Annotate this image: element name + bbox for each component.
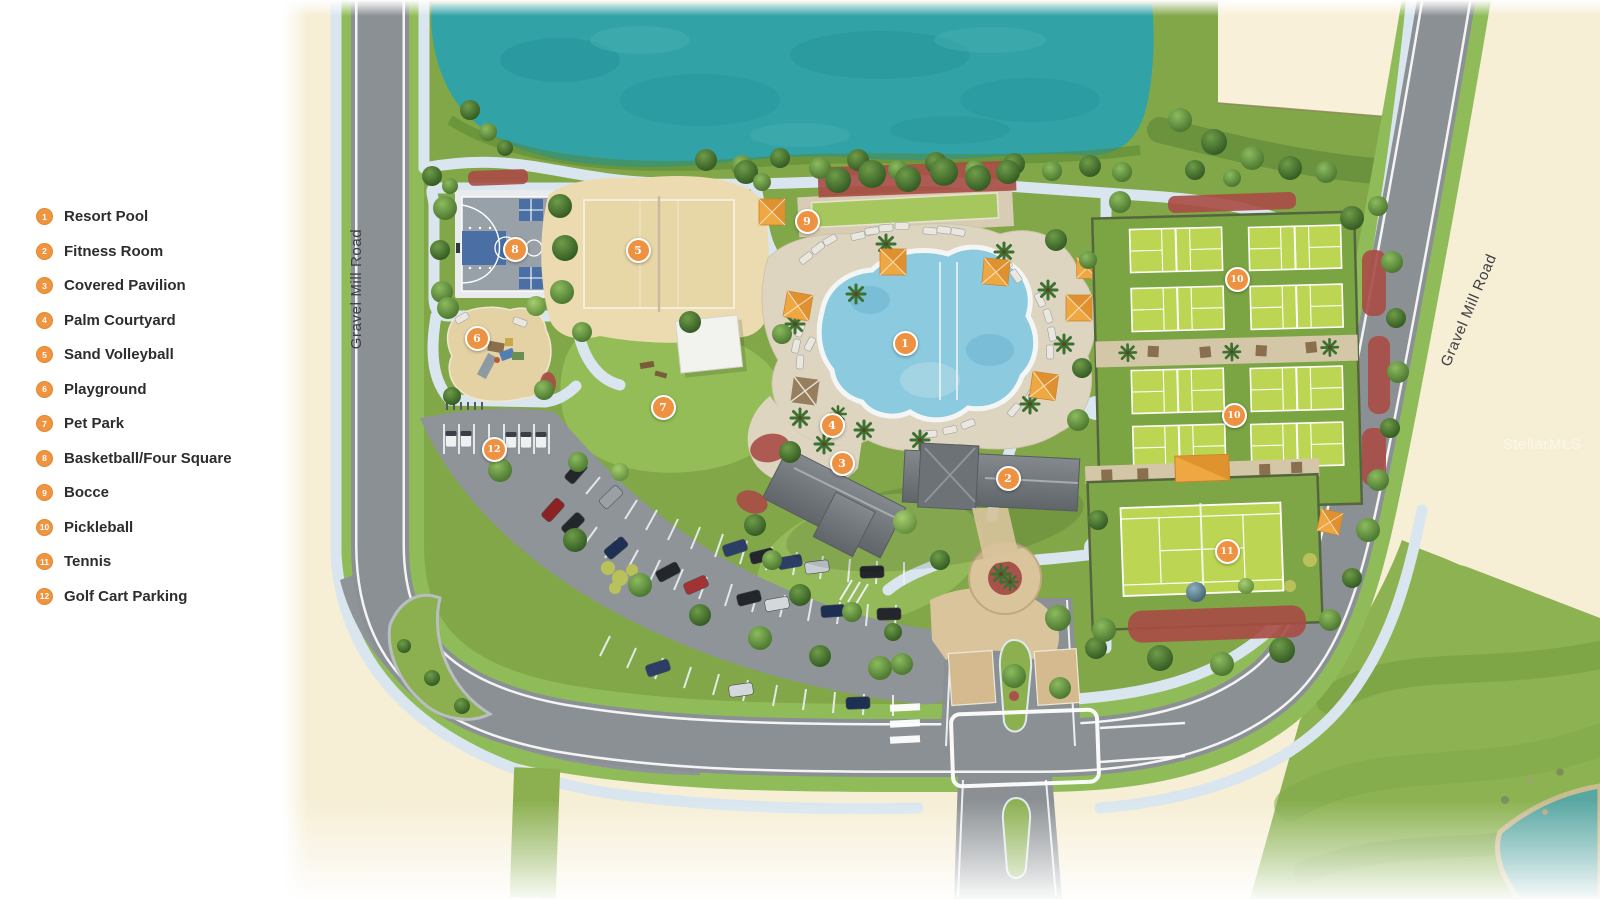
legend-item: 6Playground [36,379,232,400]
legend-number-badge: 8 [36,450,53,467]
legend-item-label: Resort Pool [64,208,148,225]
legend-item-label: Playground [64,381,147,398]
legend-item-label: Sand Volleyball [64,346,174,363]
legend-item: 2Fitness Room [36,241,232,262]
legend-number-badge: 12 [36,588,53,605]
legend-item-label: Bocce [64,484,109,501]
legend-number-badge: 2 [36,243,53,260]
legend-number-badge: 5 [36,346,53,363]
legend-item-label: Pet Park [64,415,124,432]
watermark: StellarMLS [1503,436,1581,453]
legend-item-label: Golf Cart Parking [64,588,187,605]
legend-item: 8Basketball/Four Square [36,448,232,469]
legend-number-badge: 7 [36,415,53,432]
legend-item-label: Covered Pavilion [64,277,186,294]
legend-item-label: Tennis [64,553,111,570]
legend-item: 1Resort Pool [36,206,232,227]
legend-number-badge: 4 [36,312,53,329]
legend-item: 7Pet Park [36,413,232,434]
legend-number-badge: 6 [36,381,53,398]
lake [431,4,1153,167]
legend-item-label: Palm Courtyard [64,312,176,329]
legend-item: 5Sand Volleyball [36,344,232,365]
legend: 1Resort Pool2Fitness Room3Covered Pavili… [36,206,232,607]
legend-item-label: Basketball/Four Square [64,450,232,467]
legend-number-badge: 3 [36,277,53,294]
legend-number-badge: 1 [36,208,53,225]
legend-item-label: Fitness Room [64,243,163,260]
road-label-left: Gravel Mill Road [348,229,365,349]
site-map-illustration: Gravel Mill Road Gravel Mill Road Stella… [0,0,1600,899]
site-plan-image: Gravel Mill Road Gravel Mill Road Stella… [0,0,1600,899]
legend-item: 12Golf Cart Parking [36,586,232,607]
legend-number-badge: 11 [36,553,53,570]
legend-number-badge: 10 [36,519,53,536]
legend-item-label: Pickleball [64,519,133,536]
legend-item: 9Bocce [36,482,232,503]
legend-item: 4Palm Courtyard [36,310,232,331]
legend-item: 3Covered Pavilion [36,275,232,296]
legend-item: 10Pickleball [36,517,232,538]
tennis-court [1085,451,1325,630]
legend-item: 11Tennis [36,551,232,572]
legend-number-badge: 9 [36,484,53,501]
